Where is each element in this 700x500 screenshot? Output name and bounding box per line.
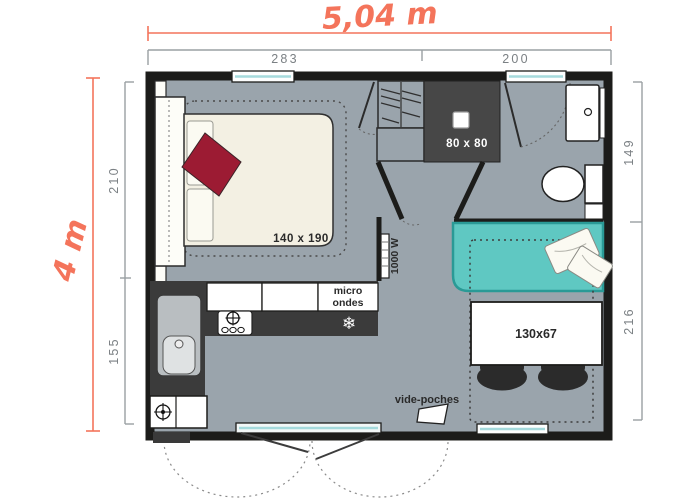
french-door bbox=[236, 423, 381, 459]
microwave-label-line2: ondes bbox=[333, 297, 364, 309]
left-segment-label-2: 155 bbox=[107, 337, 121, 364]
toilet-tank bbox=[585, 165, 603, 203]
shower-drain bbox=[453, 112, 469, 128]
entry-door-swing-arc bbox=[312, 441, 448, 497]
bedside-block-top bbox=[155, 81, 166, 97]
overall-width-label: 5,04 m bbox=[321, 0, 438, 37]
water-heater bbox=[150, 396, 207, 428]
window bbox=[232, 71, 294, 82]
entry-step bbox=[153, 432, 190, 443]
freezer-icon: ❄ bbox=[342, 314, 356, 333]
stove bbox=[218, 311, 252, 336]
kitchen-cabinet bbox=[207, 283, 262, 311]
bed-pillow bbox=[187, 189, 213, 241]
right-segment-label-1: 149 bbox=[622, 138, 636, 165]
bathroom-sink bbox=[566, 85, 599, 141]
entry-door-swing-arc bbox=[164, 441, 310, 497]
top-segment-label-2: 200 bbox=[502, 52, 529, 66]
right-segment-dimension-lines bbox=[630, 82, 642, 420]
kitchen-sink bbox=[157, 295, 201, 376]
heater-power-label: 1000 W bbox=[389, 238, 401, 274]
kitchen-cabinet bbox=[262, 283, 318, 311]
floor-plan: 140 x 190 80 x 80 1000 W bbox=[0, 0, 700, 500]
bed-size-label: 140 x 190 bbox=[273, 233, 329, 245]
top-segment-label-1: 283 bbox=[271, 52, 298, 66]
bathroom-sink-ledge bbox=[600, 88, 605, 138]
overall-width-dimension: 5,04 m bbox=[148, 0, 611, 41]
left-segment-label-1: 210 bbox=[107, 166, 121, 193]
sink-drain bbox=[585, 109, 592, 116]
microwave-label-line1: micro bbox=[334, 285, 363, 297]
window bbox=[506, 71, 566, 82]
overall-height-label: 4 m bbox=[46, 216, 95, 286]
table-size-label: 130x67 bbox=[515, 327, 557, 341]
bedside-block-bottom bbox=[155, 266, 166, 283]
vide-poches-label: vide-poches bbox=[395, 394, 459, 406]
top-segment-dimension-lines bbox=[148, 50, 611, 65]
floor-plan-page: 140 x 190 80 x 80 1000 W bbox=[0, 0, 700, 500]
left-segment-dimension-lines bbox=[120, 82, 134, 424]
toilet-side-box bbox=[585, 204, 603, 220]
overall-height-dimension: 4 m bbox=[46, 78, 100, 431]
wardrobe-left bbox=[155, 97, 185, 266]
shower-size-label: 80 x 80 bbox=[446, 138, 488, 150]
wall-heater bbox=[381, 234, 389, 278]
right-segment-label-2: 216 bbox=[622, 307, 636, 334]
toilet-bowl bbox=[542, 167, 584, 202]
window bbox=[477, 424, 548, 434]
wardrobe-shelf bbox=[377, 128, 424, 161]
